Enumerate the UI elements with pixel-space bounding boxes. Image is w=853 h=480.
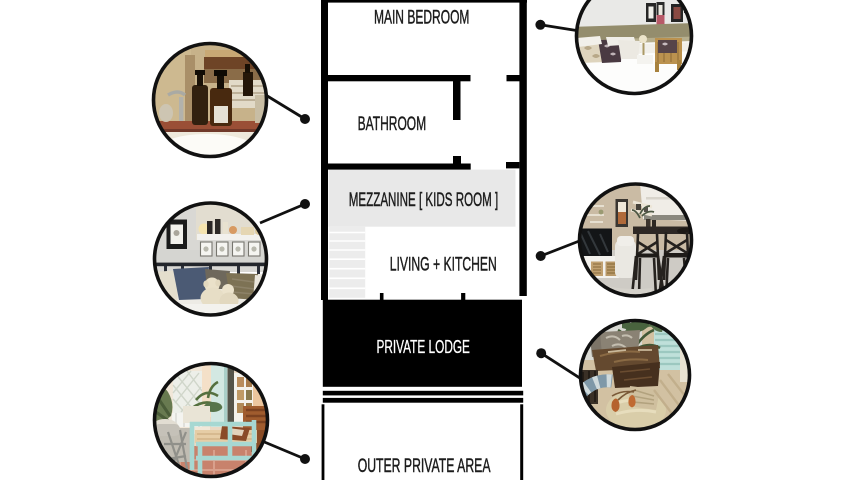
svg-text:MEZZANINE [ KIDS ROOM ]: MEZZANINE [ KIDS ROOM ] <box>349 190 499 211</box>
svg-text:OUTER PRIVATE AREA: OUTER PRIVATE AREA <box>358 456 491 477</box>
svg-text:PRIVATE LODGE: PRIVATE LODGE <box>376 337 470 357</box>
svg-text:MAIN BEDROOM: MAIN BEDROOM <box>374 8 470 29</box>
svg-text:BATHROOM: BATHROOM <box>358 114 427 135</box>
svg-text:LIVING + KITCHEN: LIVING + KITCHEN <box>390 254 497 275</box>
